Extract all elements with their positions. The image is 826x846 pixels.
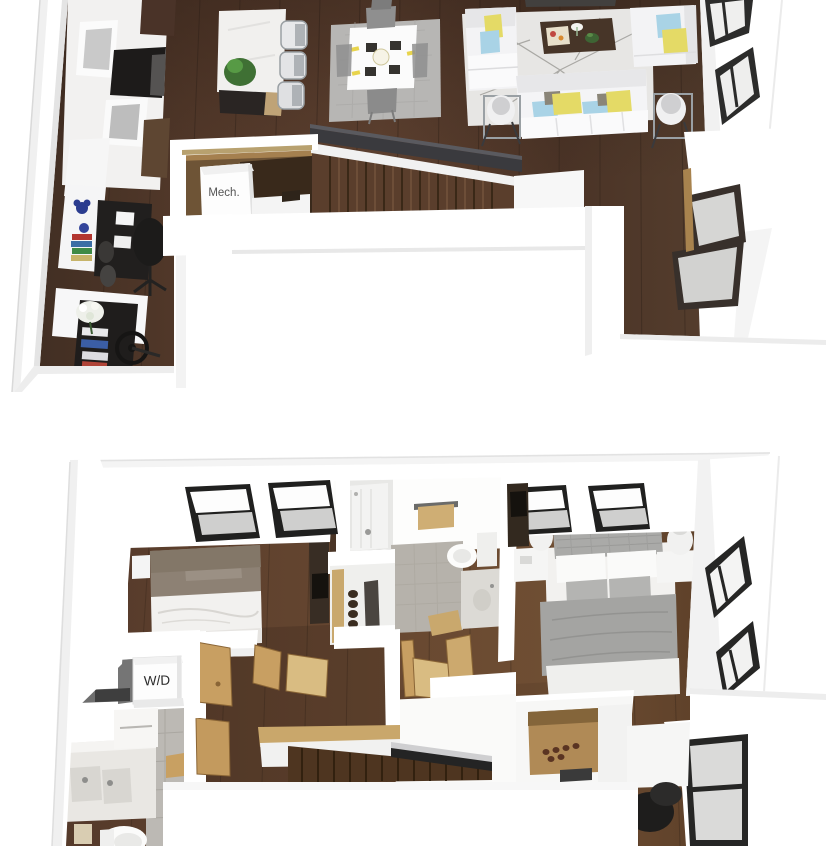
- svg-text:Mech.: Mech.: [208, 187, 239, 199]
- svg-text:W/D: W/D: [144, 673, 171, 689]
